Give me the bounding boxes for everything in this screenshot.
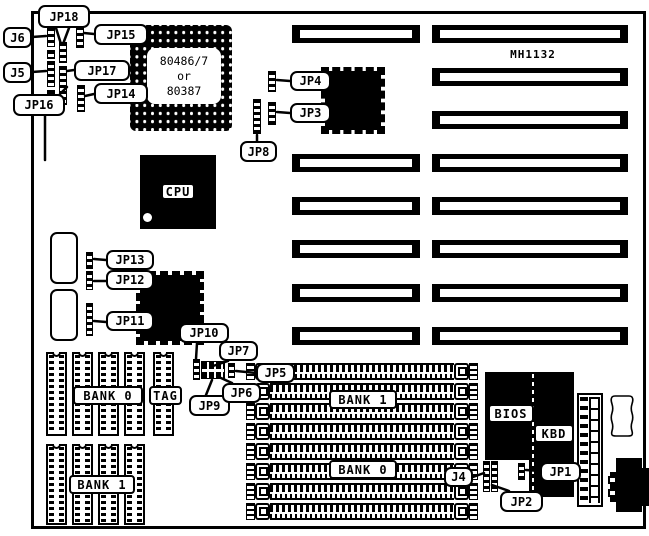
simm-latch xyxy=(454,443,469,460)
jumper-jp13-block xyxy=(86,252,93,269)
pga-line-1: 80486/7 xyxy=(160,54,208,69)
simm-latch xyxy=(454,403,469,420)
jumper-jp11-block xyxy=(86,303,93,336)
dip-notch xyxy=(52,352,61,357)
isa-slot-left-4 xyxy=(292,154,420,172)
cache-bank1-label: BANK 1 xyxy=(69,475,135,494)
pga-line-3: 80387 xyxy=(167,84,202,99)
simm-contacts xyxy=(270,423,454,440)
simm-latch xyxy=(255,483,270,500)
callout-j5: J5 xyxy=(3,62,32,83)
isa-slot-left-7 xyxy=(292,284,420,302)
simm-contacts xyxy=(270,363,454,380)
isa-slot-right-7 xyxy=(432,284,628,302)
isa-slot-right-4 xyxy=(432,154,628,172)
fuse-outline-shape xyxy=(607,394,637,438)
simm-end xyxy=(469,503,478,520)
simm-latch xyxy=(255,443,270,460)
isa-slot-left-6 xyxy=(292,240,420,258)
dip-notch xyxy=(130,444,139,449)
jumper-jp15-block xyxy=(76,26,84,48)
simm-latch xyxy=(454,383,469,400)
callout-jp2: JP2 xyxy=(500,491,543,512)
simm-latch xyxy=(454,423,469,440)
simm-bank0-label: BANK 0 xyxy=(329,460,397,479)
cache-dip-socket-bottom-1 xyxy=(46,444,67,525)
callout-j4: J4 xyxy=(444,467,473,487)
callout-jp5: JP5 xyxy=(256,363,295,383)
oscillator-1 xyxy=(50,232,78,284)
simm-latch xyxy=(255,503,270,520)
jumper-j6-block xyxy=(47,27,55,47)
jumper-jp12-block xyxy=(86,271,93,290)
din-pin-1 xyxy=(608,476,617,484)
dip-notch xyxy=(104,352,113,357)
simm-latch xyxy=(454,363,469,380)
jumper-jp5-jp6-block xyxy=(228,363,235,378)
simm-end xyxy=(469,383,478,400)
simm-latch xyxy=(454,503,469,520)
callout-jp8: JP8 xyxy=(240,141,277,162)
cache-bank0-label: BANK 0 xyxy=(73,386,143,405)
din-pin-2 xyxy=(608,489,617,497)
pga-line-2: or xyxy=(177,69,191,84)
cache-dip-socket-top-1 xyxy=(46,352,67,436)
dip-notch xyxy=(52,444,61,449)
callout-jp18: JP18 xyxy=(38,5,90,28)
simm-bank1-label: BANK 1 xyxy=(329,390,397,409)
jumper-jp2-block xyxy=(491,461,498,492)
keyboard-din-connector xyxy=(616,458,642,512)
simm-contacts xyxy=(270,503,454,520)
callout-jp16: JP16 xyxy=(13,94,65,116)
simm-end xyxy=(469,443,478,460)
isa-slot-right-8 xyxy=(432,327,628,345)
callout-jp11: JP11 xyxy=(106,311,154,331)
simm-end xyxy=(469,363,478,380)
cache-tag-label: TAG xyxy=(149,386,182,405)
isa-slot-right-6 xyxy=(432,240,628,258)
isa-slot-left-8 xyxy=(292,327,420,345)
callout-jp4: JP4 xyxy=(290,71,331,91)
cpu-label: CPU xyxy=(161,183,195,200)
callout-jp7: JP7 xyxy=(219,341,258,361)
jumper-j5-block xyxy=(47,61,55,87)
callout-jp6: JP6 xyxy=(222,383,261,403)
isa-slot-right-3 xyxy=(432,111,628,129)
dip-notch xyxy=(78,444,87,449)
jumper-jp3-block xyxy=(268,102,276,125)
simm-end xyxy=(469,483,478,500)
bios-label: BIOS xyxy=(488,404,534,423)
isa-slot-right-1 xyxy=(432,25,628,43)
callout-jp14: JP14 xyxy=(94,83,148,104)
simm-contacts xyxy=(270,443,454,460)
motherboard-diagram: MH1132 80486/7 or 80387 CPUBIOSKBDBANK 0… xyxy=(0,0,649,536)
dip-notch xyxy=(159,352,168,357)
jumper-jp8-block xyxy=(253,99,261,134)
jumper-jp18-block xyxy=(59,42,67,63)
keyboard-din-connector-right xyxy=(642,468,649,506)
simm-latch xyxy=(255,423,270,440)
callout-jp15: JP15 xyxy=(94,24,148,45)
simm-socket-5 xyxy=(246,443,478,460)
simm-end xyxy=(246,483,255,500)
isa-slot-left-5 xyxy=(292,197,420,215)
isa-slot-right-5 xyxy=(432,197,628,215)
jumper-jp14-block xyxy=(77,85,85,112)
simm-socket-7 xyxy=(246,483,478,500)
simm-latch xyxy=(255,463,270,480)
simm-end xyxy=(246,503,255,520)
jumper-j6-block-2 xyxy=(47,50,55,59)
jumper-jp10-block xyxy=(193,359,200,380)
simm-contacts xyxy=(270,483,454,500)
cpu-pin1-dot xyxy=(143,213,152,222)
pga-socket-label: 80486/7 or 80387 xyxy=(147,48,221,104)
simm-end xyxy=(246,443,255,460)
simm-end xyxy=(246,363,255,380)
callout-jp3: JP3 xyxy=(290,103,331,123)
simm-socket-8 xyxy=(246,503,478,520)
simm-end xyxy=(246,463,255,480)
callout-jp17: JP17 xyxy=(74,60,130,81)
jumper-jp7-jp9-block xyxy=(201,361,225,379)
callout-jp12: JP12 xyxy=(106,270,154,290)
callout-jp10: JP10 xyxy=(179,323,229,343)
simm-end xyxy=(246,403,255,420)
board-model-text: MH1132 xyxy=(498,48,568,61)
callout-j6: J6 xyxy=(3,27,32,48)
isa-slot-left-1 xyxy=(292,25,420,43)
callout-jp1: JP1 xyxy=(540,462,581,482)
simm-end xyxy=(246,423,255,440)
callout-jp13: JP13 xyxy=(106,250,154,270)
simm-end xyxy=(469,403,478,420)
jumper-jp1-block xyxy=(518,463,525,480)
power-connector xyxy=(577,393,603,507)
dip-notch xyxy=(104,444,113,449)
jumper-jp4-block xyxy=(268,71,276,92)
simm-latch xyxy=(255,403,270,420)
simm-socket-4 xyxy=(246,423,478,440)
fuse-outline xyxy=(607,394,637,438)
jumper-j4-jp2-block xyxy=(483,461,490,492)
kbd-label: KBD xyxy=(534,424,574,443)
oscillator-2 xyxy=(50,289,78,341)
simm-end xyxy=(469,423,478,440)
isa-slot-right-2 xyxy=(432,68,628,86)
dip-notch xyxy=(130,352,139,357)
dip-notch xyxy=(78,352,87,357)
